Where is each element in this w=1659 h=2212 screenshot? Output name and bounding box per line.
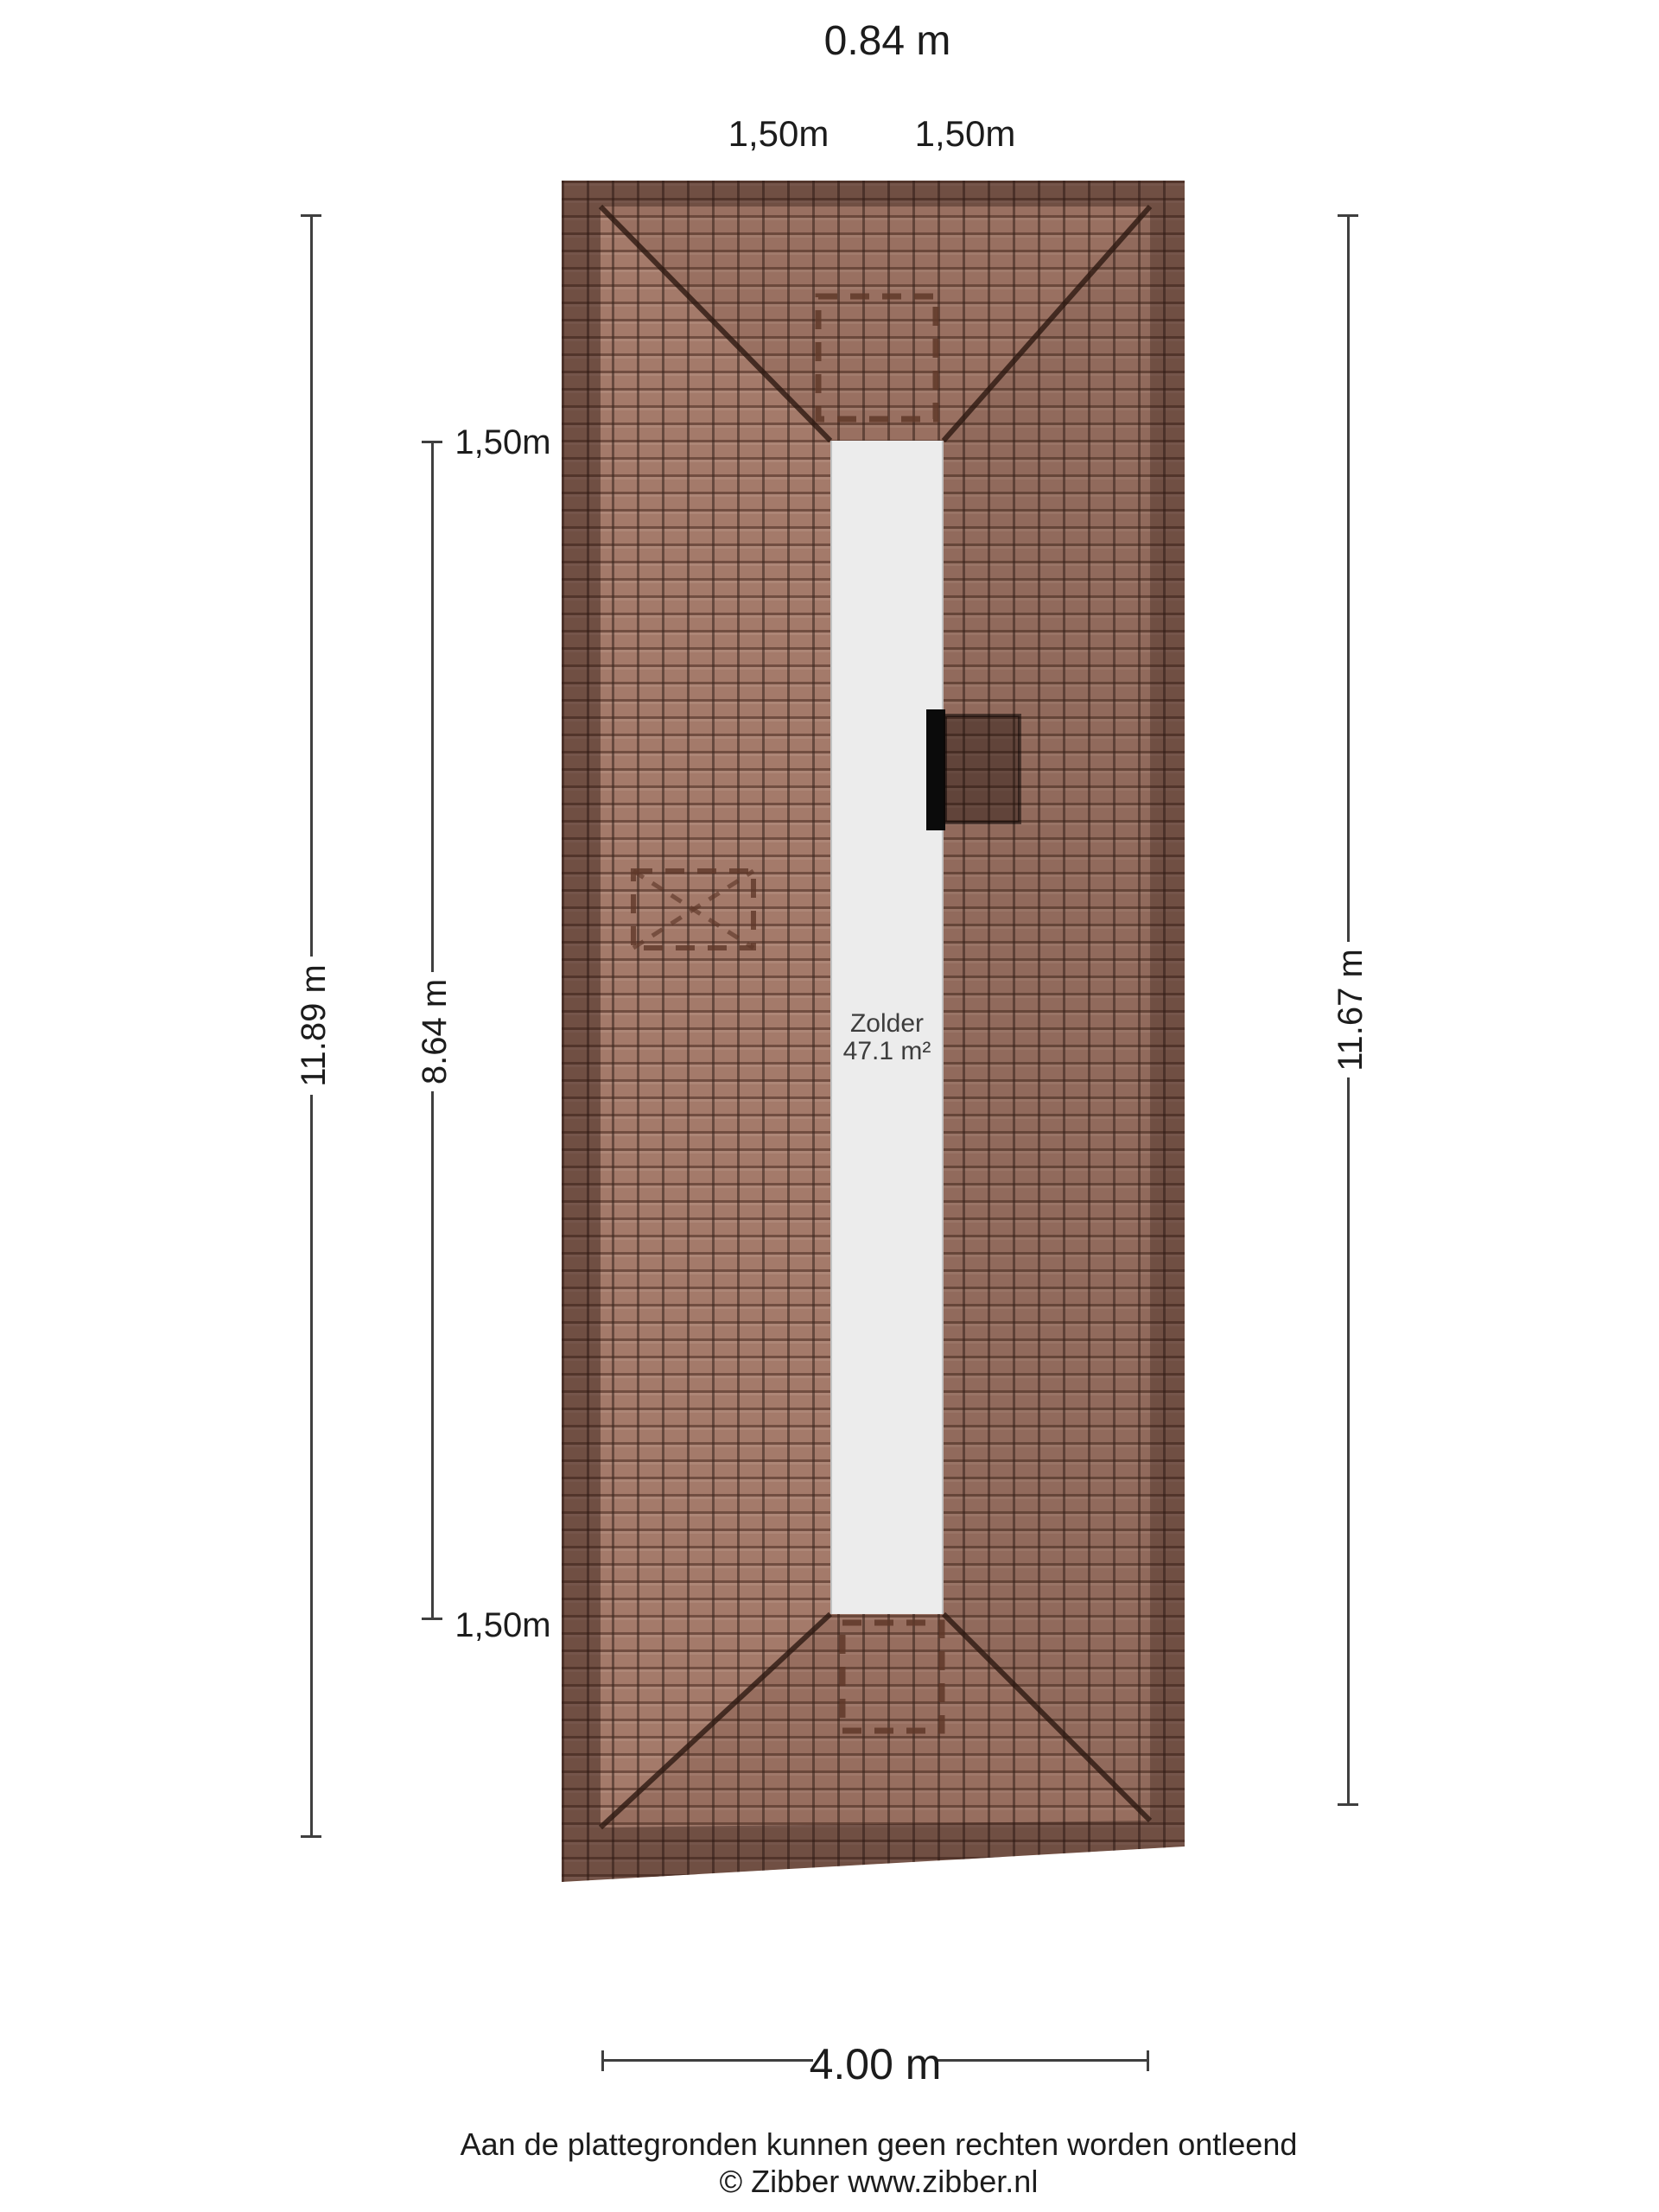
roof-window-frame xyxy=(926,709,945,830)
dimension-tick xyxy=(601,2050,604,2071)
roof-plan: Zolder 47.1 m² xyxy=(562,181,1185,1882)
dimension-tick xyxy=(422,441,442,443)
dimension-line-bottom-right-segment xyxy=(937,2059,1149,2062)
footer-copyright: © Zibber www.zibber.nl xyxy=(0,2163,1659,2200)
dimension-label-total-height-right: 11.67 m xyxy=(1333,949,1368,1071)
dimension-label-inner-height: 8.64 m xyxy=(417,979,452,1084)
dimension-label-total-width-bottom: 4.00 m xyxy=(810,2043,942,2086)
room-label: Zolder 47.1 m² xyxy=(830,1010,944,1065)
dimension-tick xyxy=(1147,2050,1149,2071)
room-name: Zolder xyxy=(830,1010,944,1038)
dimension-line-right-lower xyxy=(1347,1077,1350,1806)
dimension-label-offset-top-left: 1,50m xyxy=(728,116,829,152)
roof-window-dormer xyxy=(945,715,1020,823)
room-area: 47.1 m² xyxy=(830,1038,944,1065)
dimension-label-inner-offset-bottom: 1,50m xyxy=(454,1608,550,1643)
roof-face-right xyxy=(944,207,1150,1821)
footer-disclaimer: Aan de plattegronden kunnen geen rechten… xyxy=(0,2126,1659,2163)
dimension-line-left-inner-lower xyxy=(431,1091,434,1620)
dimension-tick xyxy=(301,214,321,217)
dimension-tick xyxy=(422,1618,442,1620)
dimension-line-left-outer-lower xyxy=(310,1095,313,1838)
footer: Aan de plattegronden kunnen geen rechten… xyxy=(0,2126,1659,2200)
dimension-tick xyxy=(1338,214,1358,217)
dimension-label-inner-offset-top: 1,50m xyxy=(454,425,550,460)
dimension-line-left-inner-upper xyxy=(431,441,434,972)
dimension-label-total-height-left: 11.89 m xyxy=(296,964,331,1087)
dimension-label-offset-top-right: 1,50m xyxy=(915,116,1016,152)
dimension-tick xyxy=(301,1835,321,1838)
dimension-line-bottom-left-segment xyxy=(601,2059,813,2062)
dimension-label-roof-top-width: 0.84 m xyxy=(824,21,951,62)
dimension-tick xyxy=(1338,1803,1358,1806)
dimension-line-right-upper xyxy=(1347,214,1350,942)
dimension-line-left-outer-upper xyxy=(310,214,313,957)
